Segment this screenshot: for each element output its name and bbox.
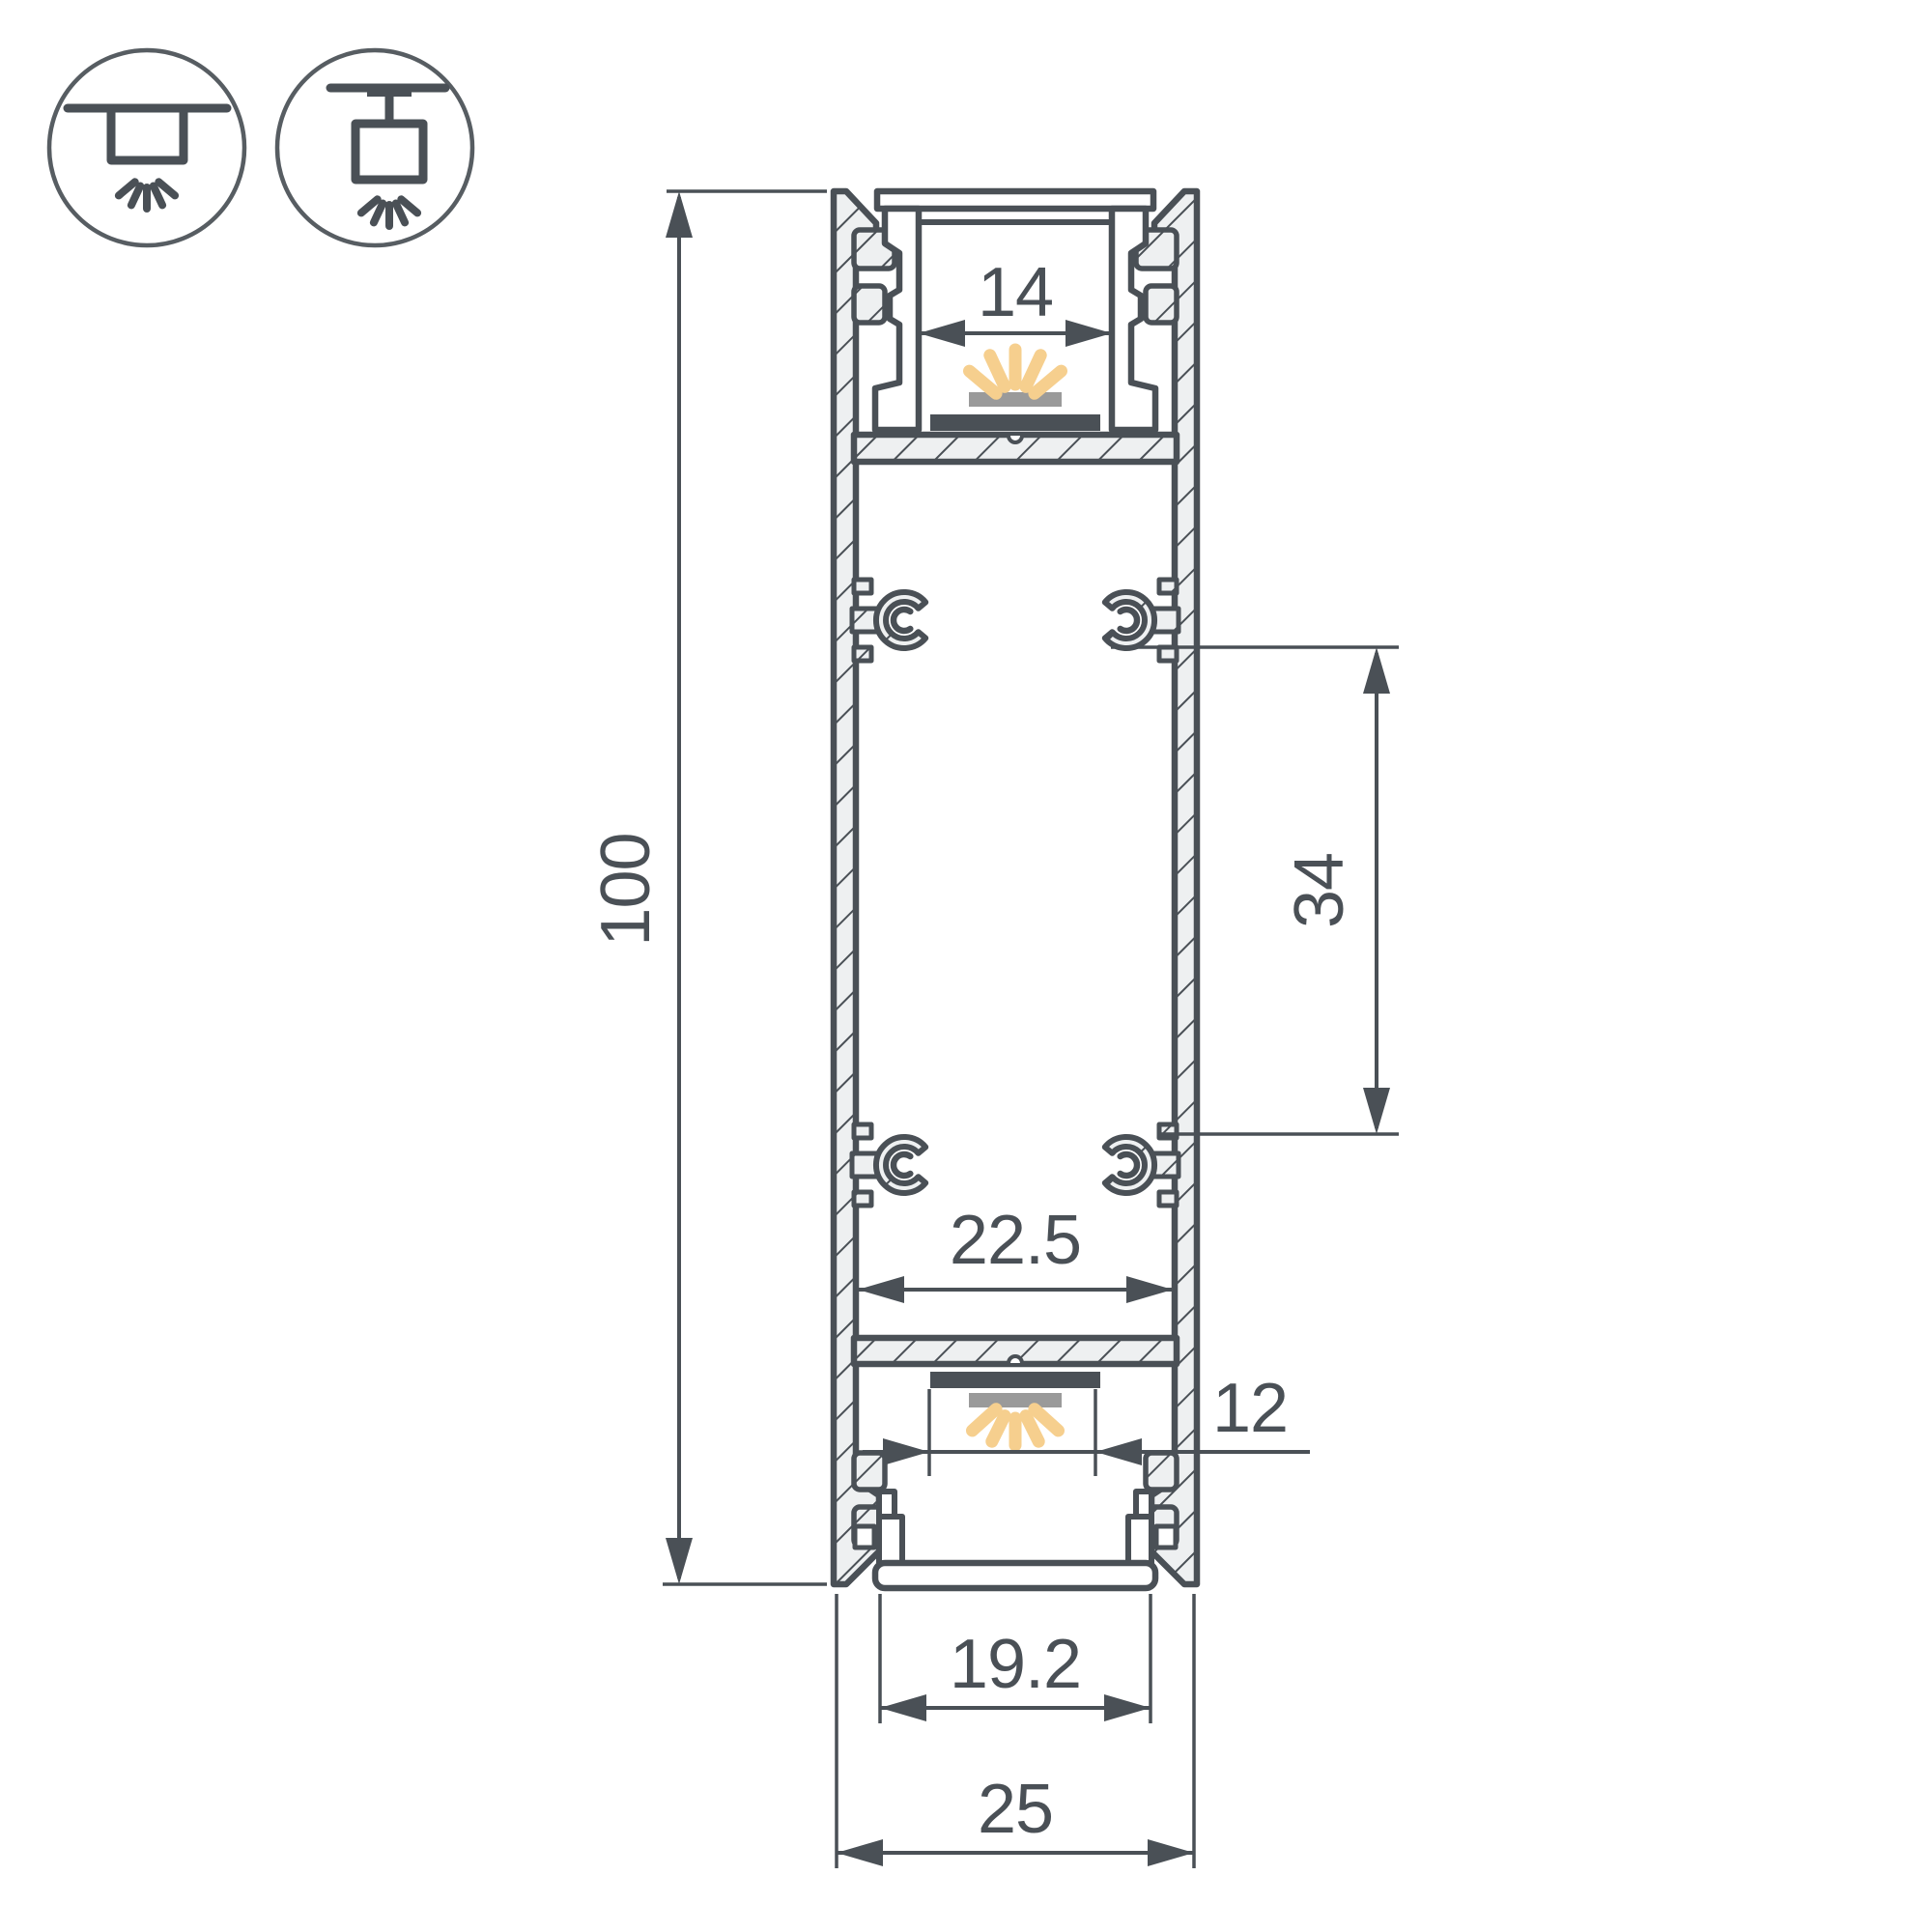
diffuser-top — [969, 392, 1062, 407]
dim-label-boss-spacing: 34 — [1281, 853, 1358, 928]
dim-label-bottom-opening: 19.2 — [950, 1626, 1081, 1703]
screw-notch-top — [1009, 436, 1022, 442]
led-strip-top — [930, 414, 1100, 431]
drawing-canvas: 100 14 34 22.5 — [0, 0, 1932, 1932]
dim-label-height: 100 — [587, 833, 665, 946]
tray-bottom — [875, 1563, 1155, 1588]
dim-label-inner-width: 22.5 — [950, 1202, 1081, 1279]
diffuser-bottom — [969, 1393, 1062, 1407]
profile-drawing-page: 100 14 34 22.5 — [0, 0, 1932, 1932]
dim-label-overall-width: 25 — [978, 1771, 1053, 1848]
led-strip-bottom — [930, 1372, 1100, 1388]
dim-label-top-opening: 14 — [978, 254, 1053, 331]
screw-notch-bottom — [1009, 1356, 1022, 1363]
dim-label-bottom-slot: 12 — [1212, 1370, 1288, 1447]
clip-groove-right — [1156, 1526, 1176, 1548]
clip-groove-left — [855, 1526, 874, 1548]
